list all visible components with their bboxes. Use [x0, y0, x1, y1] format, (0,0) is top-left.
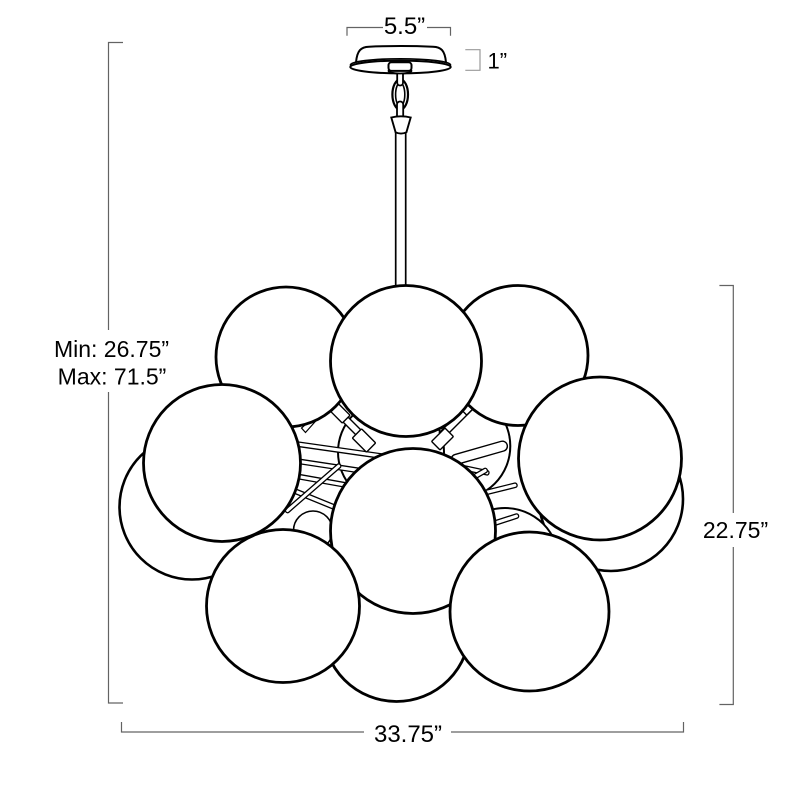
svg-text:33.75”: 33.75”: [374, 721, 442, 748]
svg-text:5.5”: 5.5”: [384, 13, 425, 40]
svg-text:Max: 71.5”: Max: 71.5”: [58, 364, 167, 390]
svg-text:1”: 1”: [488, 49, 508, 74]
svg-text:Min: 26.75”: Min: 26.75”: [54, 336, 169, 362]
svg-text:22.75”: 22.75”: [703, 517, 768, 543]
